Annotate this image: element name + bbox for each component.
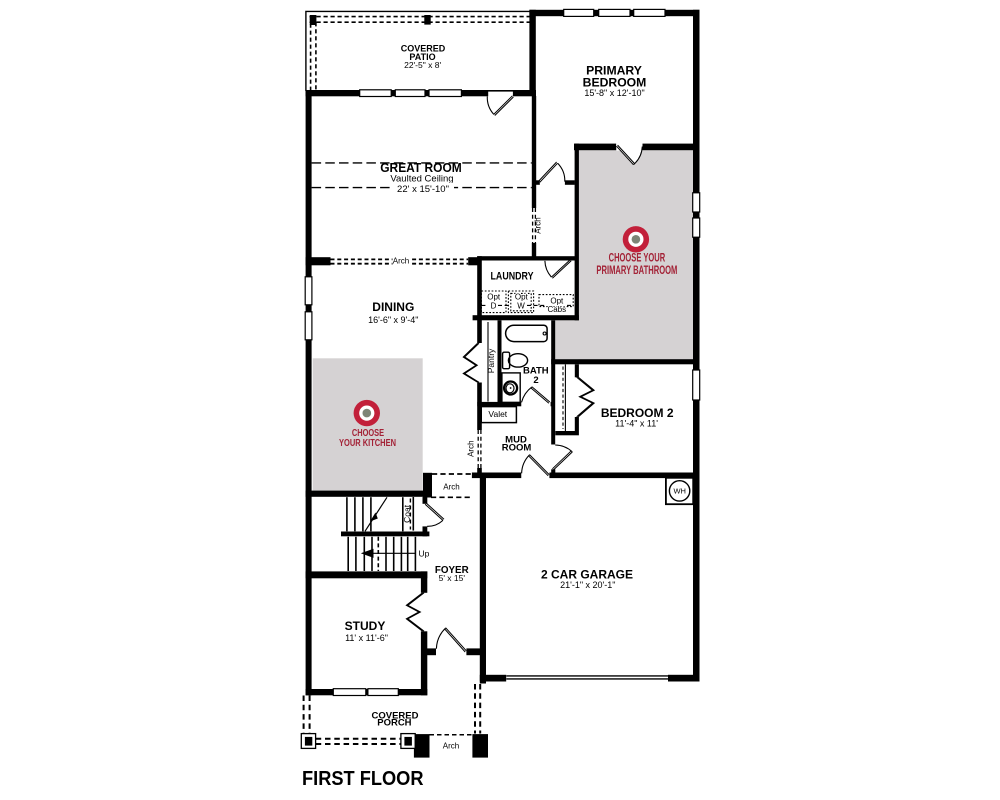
svg-text:Up: Up	[419, 549, 430, 559]
svg-text:21'-1" x 20'-1": 21'-1" x 20'-1"	[560, 580, 615, 590]
svg-text:YOUR KITCHEN: YOUR KITCHEN	[339, 438, 396, 449]
svg-text:5' x 15': 5' x 15'	[439, 573, 466, 583]
svg-text:22' x 15'-10": 22' x 15'-10"	[397, 184, 449, 195]
svg-text:Arch: Arch	[534, 217, 543, 233]
svg-text:WH: WH	[673, 487, 686, 496]
svg-text:DINING: DINING	[372, 300, 414, 314]
svg-text:Opt: Opt	[515, 293, 529, 302]
svg-text:Cabs: Cabs	[547, 305, 566, 314]
svg-text:11' x 11'-6": 11' x 11'-6"	[345, 633, 388, 643]
svg-text:Arch: Arch	[466, 440, 475, 456]
svg-text:D: D	[491, 301, 497, 310]
svg-text:FIRST FLOOR: FIRST FLOOR	[302, 767, 424, 790]
svg-text:Arch: Arch	[393, 257, 409, 266]
svg-text:STUDY: STUDY	[345, 619, 386, 633]
svg-text:Arch: Arch	[443, 742, 459, 751]
svg-text:Coat: Coat	[402, 504, 412, 523]
svg-text:PORCH: PORCH	[377, 718, 411, 729]
svg-text:GREAT ROOM: GREAT ROOM	[380, 160, 462, 175]
svg-text:W: W	[517, 301, 525, 310]
svg-text:Pantry: Pantry	[486, 348, 496, 373]
svg-text:Arch: Arch	[443, 483, 459, 492]
svg-text:LAUNDRY: LAUNDRY	[491, 270, 535, 282]
svg-text:15'-8" x 12'-10": 15'-8" x 12'-10"	[584, 88, 644, 98]
svg-text:Valet: Valet	[488, 409, 507, 419]
svg-text:ROOM: ROOM	[502, 443, 532, 454]
svg-text:2: 2	[533, 375, 538, 386]
svg-text:16'-6" x 9'-4": 16'-6" x 9'-4"	[368, 315, 418, 325]
svg-text:Opt: Opt	[487, 293, 501, 302]
svg-text:22'-5" x 8': 22'-5" x 8'	[404, 60, 441, 70]
svg-text:PRIMARY BATHROOM: PRIMARY BATHROOM	[596, 263, 677, 277]
svg-text:11'-4" x 11': 11'-4" x 11'	[615, 418, 658, 428]
